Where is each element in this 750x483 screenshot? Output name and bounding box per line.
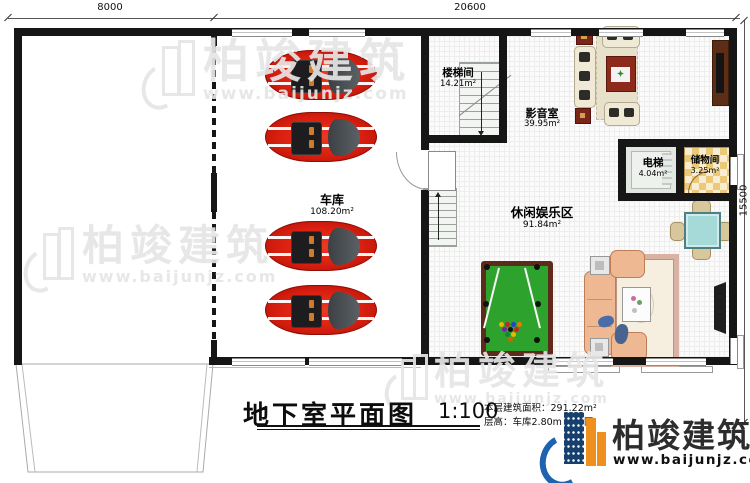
door-swing-icon	[396, 152, 428, 190]
pool-balls	[499, 322, 523, 344]
partition-segment	[211, 36, 217, 46]
window-sill	[737, 335, 744, 369]
garage-door	[309, 358, 402, 366]
driveway-ramp	[14, 358, 216, 478]
watermark-logo-icon	[22, 225, 74, 293]
title-underline	[257, 429, 480, 430]
window-sill	[548, 366, 620, 373]
sofa-set-icon	[584, 250, 670, 360]
window-sill	[641, 366, 713, 373]
logo-tower-orange	[586, 418, 596, 466]
window	[599, 29, 643, 37]
tea-table-icon	[668, 198, 732, 260]
side-table	[575, 108, 591, 124]
logo-building-icon	[540, 406, 610, 480]
car-icon	[265, 221, 377, 271]
tv-icon	[716, 53, 724, 93]
room-label-media: 影音室 39.95m²	[512, 108, 572, 130]
dim-top-left: 8000	[60, 2, 160, 13]
logo-tower-navy	[564, 412, 584, 464]
garage-door-sill	[209, 367, 421, 368]
wall-mediaroom-bottom	[618, 139, 737, 147]
window	[531, 29, 571, 37]
wall-elevator-storage-bottom	[618, 193, 737, 201]
stair-arrow-head	[435, 192, 441, 197]
watermark-logo-icon	[140, 38, 195, 110]
tv-icon	[714, 282, 726, 334]
side-table	[590, 256, 610, 275]
window	[553, 358, 613, 366]
dim-line-top	[8, 18, 740, 19]
window	[646, 358, 706, 366]
watermark: 柏竣建筑 www.baijunjz.com	[22, 225, 277, 293]
room-label-stairwell: 楼梯间 14.21m²	[429, 68, 487, 89]
floor-plan-page: 车库 108.20m² 楼梯间 14.21m² 影音室 39.95m² 电梯 4…	[0, 0, 750, 483]
room-label-leisure: 休闲娱乐区 91.84m²	[502, 206, 582, 230]
wall-garage-hall-lower	[421, 190, 429, 357]
door-leaf	[428, 151, 456, 191]
room-label-garage: 车库 108.20m²	[287, 194, 377, 218]
cue-stick	[524, 268, 541, 329]
partition-segment	[211, 173, 217, 212]
brand-name: 柏竣建筑	[612, 409, 750, 457]
table-top	[684, 212, 721, 249]
wall-stairroom-right	[499, 36, 507, 143]
car-icon	[265, 285, 377, 335]
dim-right: 15500	[739, 171, 750, 231]
cue-stick	[483, 268, 500, 329]
side-table	[590, 338, 609, 357]
coffee-table	[606, 56, 636, 92]
partition-dashed	[212, 212, 216, 340]
garage-door	[232, 358, 305, 366]
coffee-table	[622, 287, 651, 322]
tv-cabinet	[712, 40, 729, 106]
window	[686, 29, 724, 37]
car-engine	[291, 60, 322, 93]
brand-website: www.baijunjz.com	[613, 452, 750, 468]
dim-top-right: 20600	[430, 2, 510, 13]
car-icon	[265, 50, 377, 100]
chair	[670, 222, 685, 241]
room-label-elevator: 电梯 4.04m²	[632, 158, 674, 179]
room-label-storage: 储物间 3.25m²	[680, 156, 730, 176]
logo-tower-orange	[597, 432, 606, 466]
pool-table-icon	[481, 261, 553, 356]
wall-garage-hall-upper	[421, 36, 429, 150]
window	[309, 29, 365, 37]
wall-left	[14, 28, 22, 365]
sofa-set-icon	[572, 24, 662, 128]
car-icon	[265, 112, 377, 162]
wall-stairroom-bottom	[421, 135, 507, 143]
title-underline	[257, 425, 480, 427]
partition-dashed	[212, 46, 216, 173]
window	[730, 338, 738, 364]
stair-arrow	[438, 196, 439, 240]
window	[730, 157, 738, 185]
window	[232, 29, 292, 37]
partition-segment	[211, 340, 217, 365]
